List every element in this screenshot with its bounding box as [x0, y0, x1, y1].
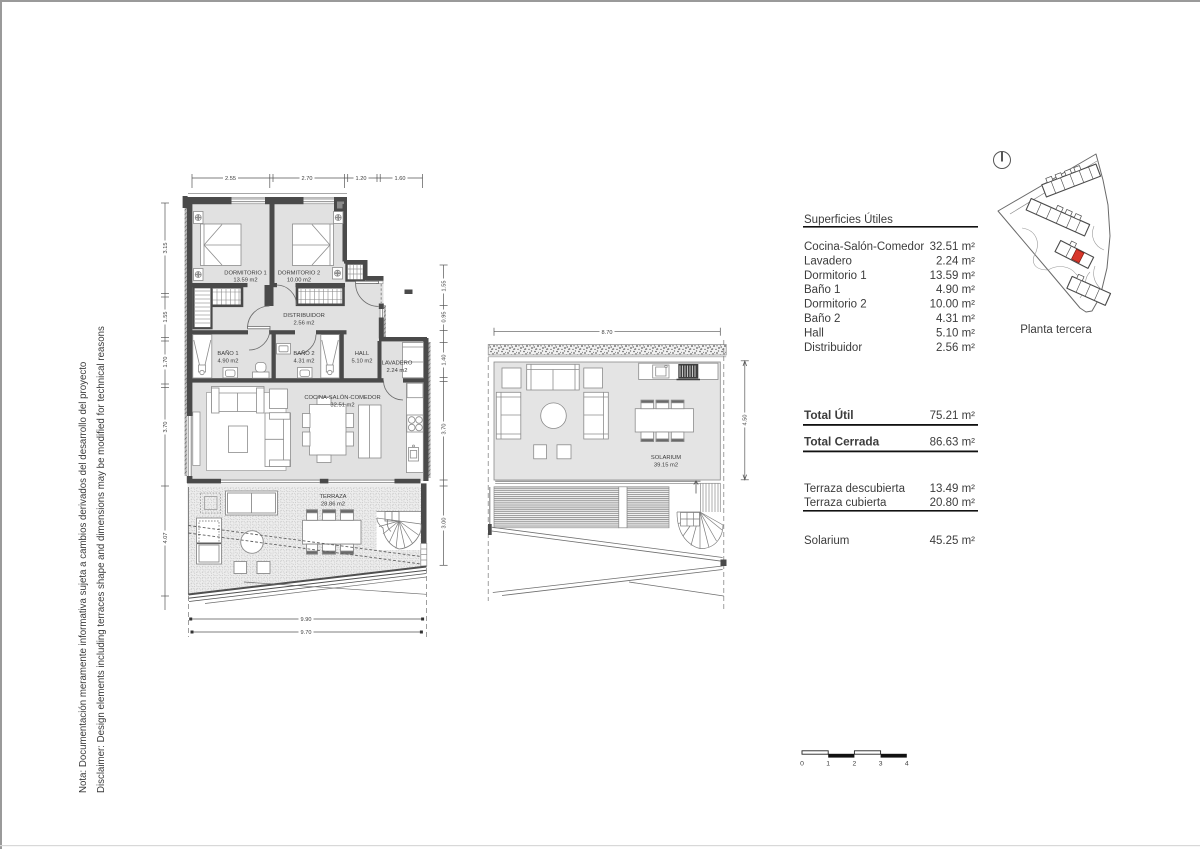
svg-text:Hall: Hall	[804, 327, 824, 339]
svg-text:2.56 m2: 2.56 m2	[294, 321, 315, 327]
svg-text:DISTRIBUIDOR: DISTRIBUIDOR	[283, 313, 325, 319]
svg-text:Baño 1: Baño 1	[804, 284, 840, 296]
svg-text:20.80 m²: 20.80 m²	[930, 497, 976, 509]
svg-text:2.24 m²: 2.24 m²	[936, 255, 975, 267]
svg-text:HALL: HALL	[355, 351, 370, 357]
svg-text:13.49 m²: 13.49 m²	[930, 483, 976, 495]
svg-text:32.51 m²: 32.51 m²	[930, 241, 976, 253]
svg-text:TERRAZA: TERRAZA	[319, 494, 346, 500]
svg-text:0.95: 0.95	[442, 312, 448, 323]
svg-text:Disclaimer: Design elements in: Disclaimer: Design elements including te…	[96, 326, 107, 793]
svg-text:Dormitorio 1: Dormitorio 1	[804, 270, 867, 282]
svg-text:4.90 m2: 4.90 m2	[218, 359, 239, 365]
svg-text:10.00 m2: 10.00 m2	[287, 278, 311, 284]
svg-text:86.63 m²: 86.63 m²	[930, 437, 976, 449]
svg-text:1.55: 1.55	[163, 312, 169, 323]
svg-text:5.10 m²: 5.10 m²	[936, 327, 975, 339]
svg-text:1.40: 1.40	[442, 355, 448, 366]
svg-text:Cocina-Salón-Comedor: Cocina-Salón-Comedor	[804, 241, 924, 253]
svg-text:2.56 m²: 2.56 m²	[936, 342, 975, 354]
svg-text:1.55: 1.55	[442, 281, 448, 292]
svg-text:Superficies Útiles: Superficies Útiles	[804, 213, 893, 226]
svg-text:4: 4	[905, 761, 909, 768]
svg-text:4.07: 4.07	[163, 533, 169, 544]
svg-text:DORMITORIO 1: DORMITORIO 1	[224, 271, 266, 277]
svg-text:4.50: 4.50	[743, 415, 749, 426]
svg-text:1: 1	[826, 761, 830, 768]
svg-text:3: 3	[879, 761, 883, 768]
svg-text:45.25 m²: 45.25 m²	[930, 535, 976, 547]
svg-text:1.20: 1.20	[356, 176, 367, 182]
svg-text:LAVADERO: LAVADERO	[382, 361, 413, 367]
svg-text:Lavadero: Lavadero	[804, 255, 852, 267]
svg-text:Total Cerrada: Total Cerrada	[804, 435, 880, 449]
svg-text:13.59 m2: 13.59 m2	[233, 278, 257, 284]
svg-text:1.70: 1.70	[163, 357, 169, 368]
svg-text:3.00: 3.00	[442, 518, 448, 529]
svg-text:32.51 m2: 32.51 m2	[330, 403, 354, 409]
svg-text:Dormitorio 2: Dormitorio 2	[804, 299, 867, 311]
svg-text:Distribuidor: Distribuidor	[804, 342, 862, 354]
svg-text:9.90: 9.90	[301, 617, 312, 623]
svg-text:3.70: 3.70	[442, 424, 448, 435]
svg-text:4.31 m²: 4.31 m²	[936, 313, 975, 325]
svg-text:2.70: 2.70	[302, 176, 313, 182]
svg-text:Total Útil: Total Útil	[804, 408, 854, 422]
svg-text:COCINA-SALÓN-COMEDOR: COCINA-SALÓN-COMEDOR	[304, 394, 380, 401]
svg-text:Solarium: Solarium	[804, 535, 849, 547]
svg-text:3.15: 3.15	[163, 243, 169, 254]
svg-text:0: 0	[800, 761, 804, 768]
svg-text:BAÑO 1: BAÑO 1	[217, 350, 238, 357]
svg-text:2.55: 2.55	[225, 176, 236, 182]
svg-text:39.15 m2: 39.15 m2	[654, 463, 678, 469]
svg-text:3.70: 3.70	[163, 422, 169, 433]
svg-text:Terraza cubierta: Terraza cubierta	[804, 497, 887, 509]
svg-text:Nota: Documentación meramente: Nota: Documentación meramente informativ…	[78, 362, 89, 793]
svg-text:9.70: 9.70	[301, 630, 312, 636]
svg-text:2: 2	[853, 761, 857, 768]
svg-text:5.10 m2: 5.10 m2	[352, 359, 373, 365]
svg-text:Terraza descubierta: Terraza descubierta	[804, 483, 906, 495]
svg-text:DORMITORIO 2: DORMITORIO 2	[278, 271, 320, 277]
svg-text:Baño 2: Baño 2	[804, 313, 840, 325]
svg-text:8.70: 8.70	[602, 330, 613, 336]
svg-text:28.86 m2: 28.86 m2	[321, 502, 345, 508]
svg-text:BAÑO 2: BAÑO 2	[293, 350, 314, 357]
svg-text:SOLARIUM: SOLARIUM	[651, 455, 681, 461]
svg-text:4.31 m2: 4.31 m2	[294, 359, 315, 365]
svg-text:13.59 m²: 13.59 m²	[930, 270, 976, 282]
svg-text:10.00 m²: 10.00 m²	[930, 299, 976, 311]
svg-text:Planta tercera: Planta tercera	[1020, 324, 1092, 336]
svg-text:1.60: 1.60	[395, 176, 406, 182]
svg-text:75.21 m²: 75.21 m²	[930, 410, 976, 422]
svg-text:4.90 m²: 4.90 m²	[936, 284, 975, 296]
svg-text:2.24 m2: 2.24 m2	[387, 368, 408, 374]
